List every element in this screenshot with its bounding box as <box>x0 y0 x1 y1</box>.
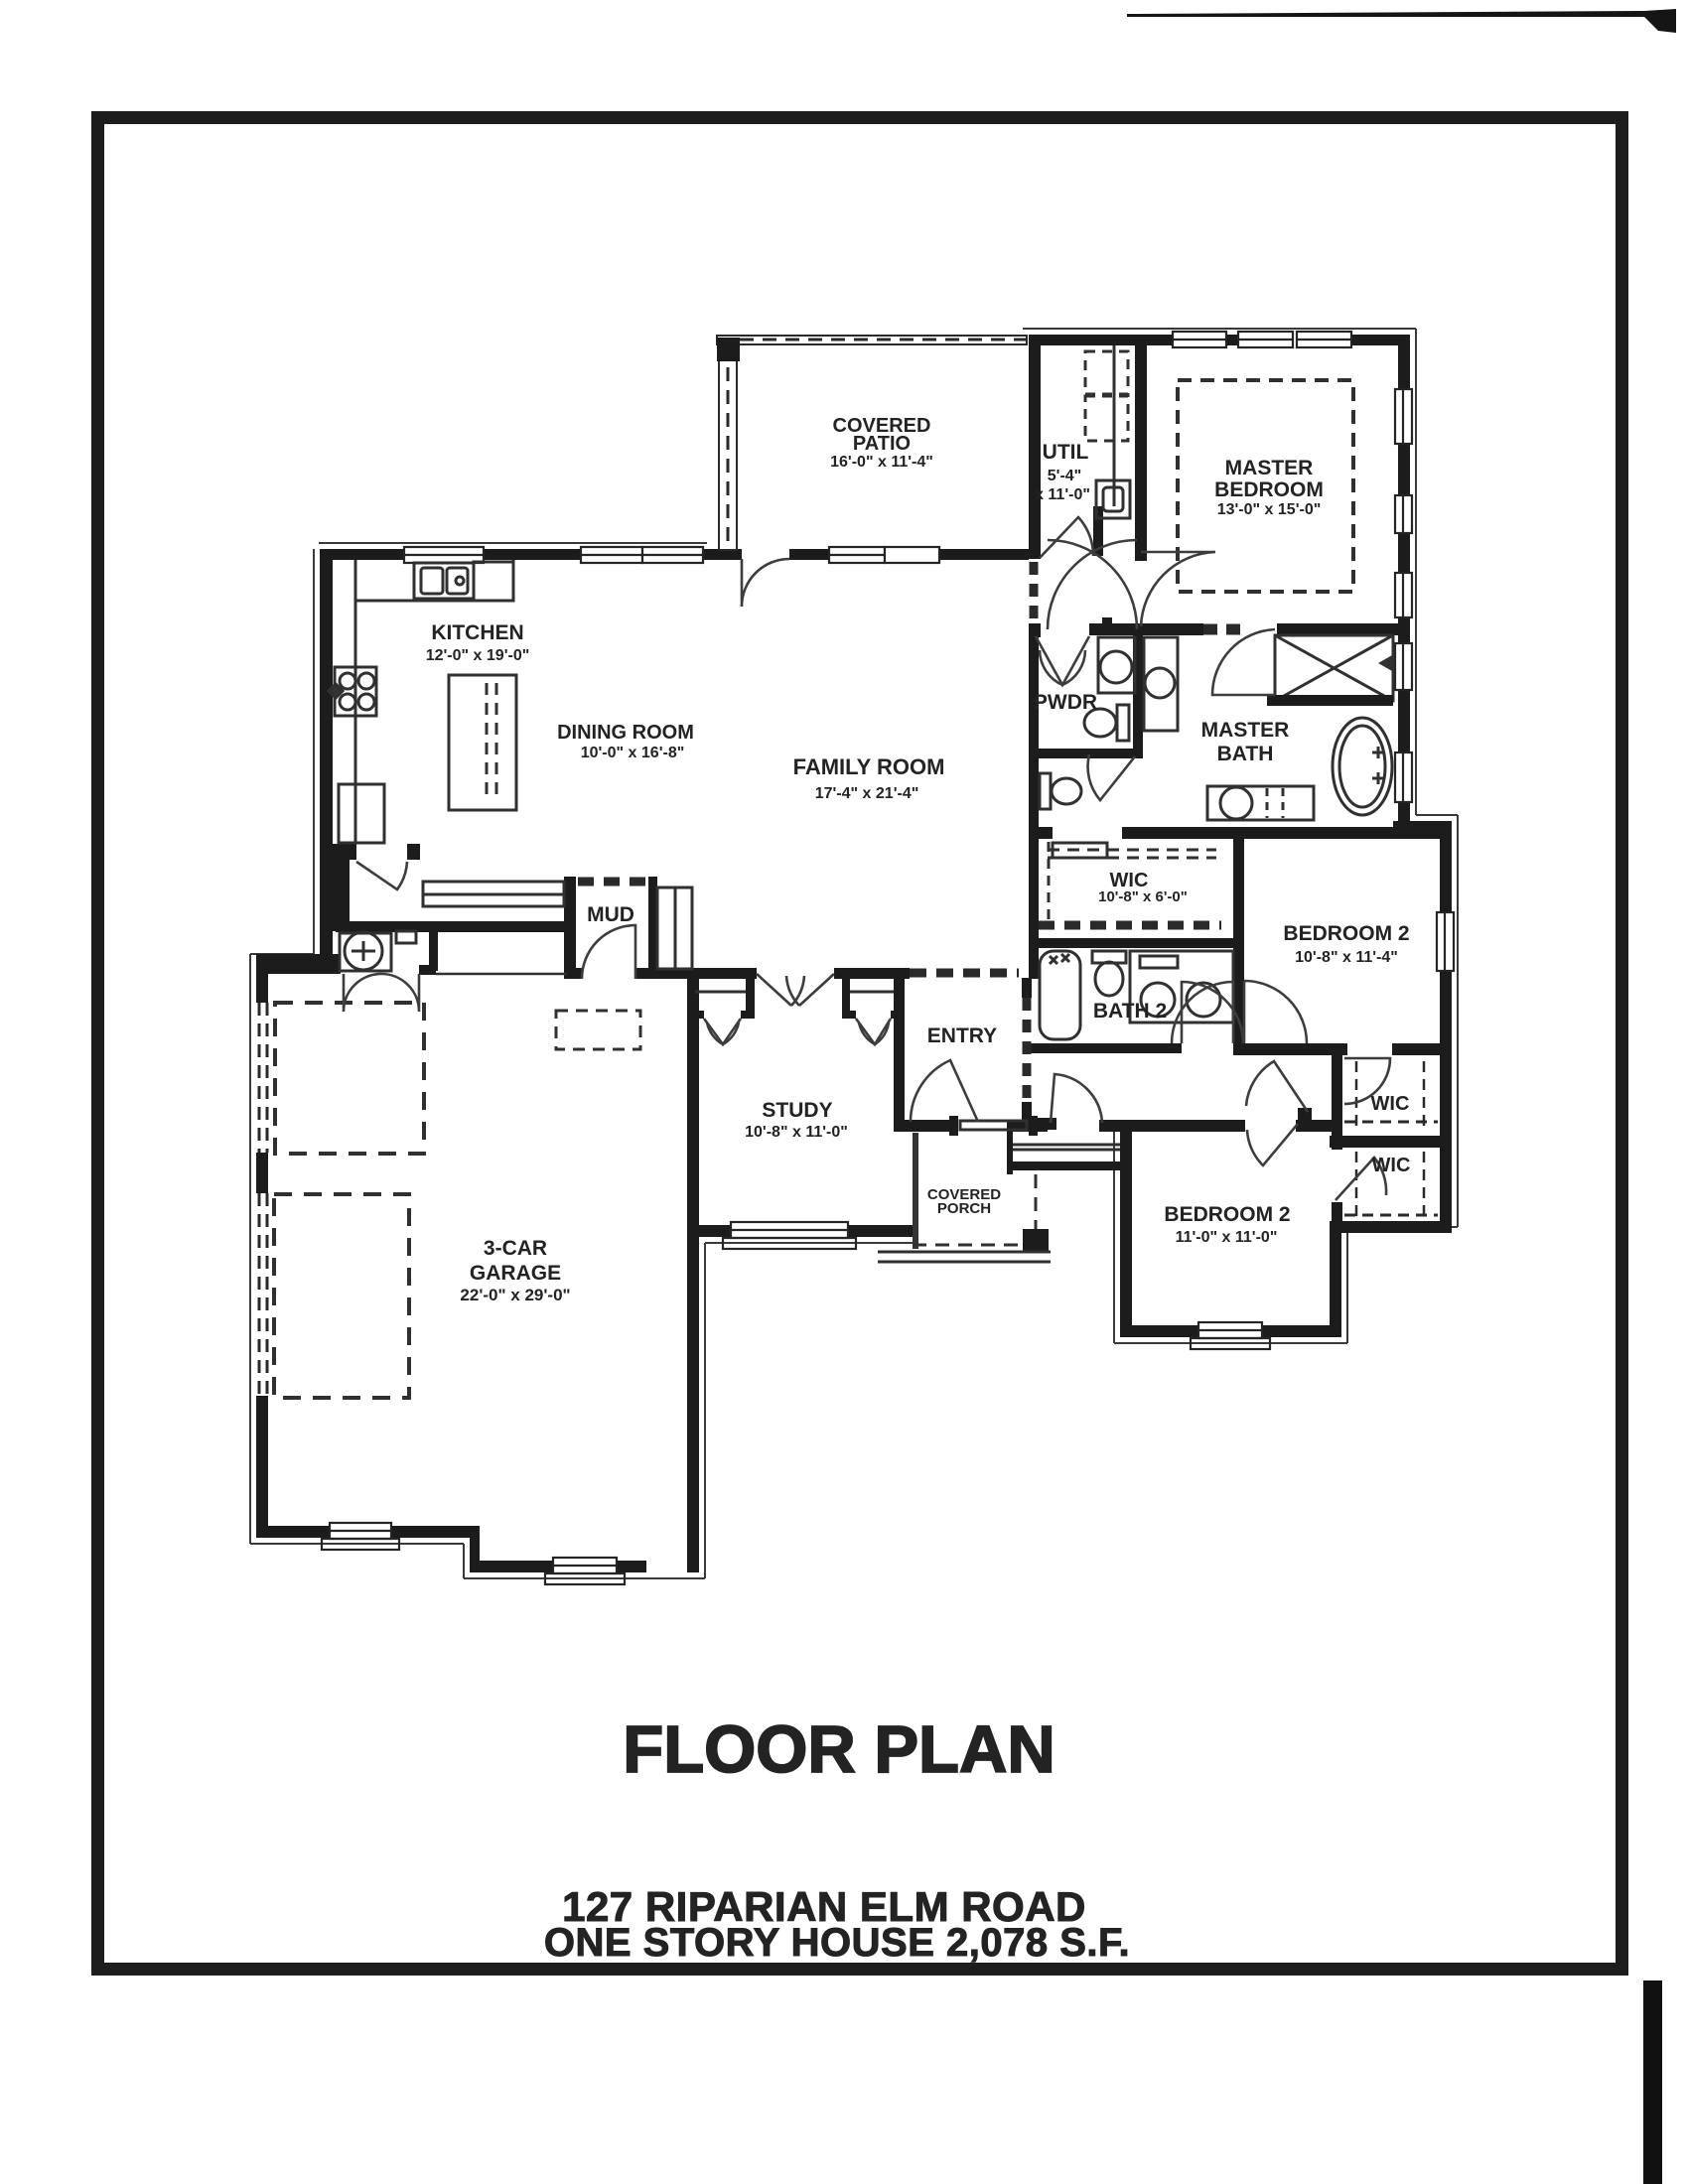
svg-text:PATIO: PATIO <box>853 433 911 455</box>
svg-text:KITCHEN: KITCHEN <box>431 621 523 644</box>
svg-text:10'-8" x 11'-4": 10'-8" x 11'-4" <box>1295 949 1398 966</box>
svg-text:DINING ROOM: DINING ROOM <box>557 722 694 744</box>
svg-text:12'-0" x 19'-0": 12'-0" x 19'-0" <box>426 647 530 664</box>
svg-text:BATH: BATH <box>1217 743 1274 765</box>
svg-text:MASTER: MASTER <box>1201 719 1290 742</box>
svg-text:WIC: WIC <box>1372 1155 1411 1176</box>
svg-text:10'-8" x 6'-0": 10'-8" x 6'-0" <box>1098 888 1188 905</box>
svg-text:UTIL: UTIL <box>1043 441 1089 464</box>
svg-text:x 11'-0": x 11'-0" <box>1035 486 1090 503</box>
svg-text:5'-4": 5'-4" <box>1048 468 1082 484</box>
svg-text:STUDY: STUDY <box>762 1099 832 1122</box>
svg-text:MUD: MUD <box>587 903 634 926</box>
svg-text:10'-8" x 11'-0": 10'-8" x 11'-0" <box>745 1124 848 1141</box>
svg-text:WIC: WIC <box>1371 1093 1410 1115</box>
svg-text:13'-0" x 15'-0": 13'-0" x 15'-0" <box>1217 501 1322 518</box>
svg-text:17'-4" x 21'-4": 17'-4" x 21'-4" <box>815 785 919 802</box>
svg-text:PORCH: PORCH <box>937 1200 991 1217</box>
svg-text:10'-0" x 16'-8": 10'-0" x 16'-8" <box>581 745 685 761</box>
svg-text:BEDROOM: BEDROOM <box>1214 478 1324 501</box>
svg-text:FAMILY ROOM: FAMILY ROOM <box>793 754 945 779</box>
svg-text:MASTER: MASTER <box>1225 457 1314 479</box>
svg-text:11'-0" x 11'-0": 11'-0" x 11'-0" <box>1176 1229 1278 1246</box>
svg-text:16'-0" x 11'-4": 16'-0" x 11'-4" <box>830 454 933 471</box>
svg-text:BEDROOM 2: BEDROOM 2 <box>1283 922 1409 945</box>
svg-text:GARAGE: GARAGE <box>470 1262 561 1285</box>
svg-text:BEDROOM 2: BEDROOM 2 <box>1164 1203 1290 1226</box>
svg-text:22'-0" x 29'-0": 22'-0" x 29'-0" <box>460 1286 570 1304</box>
svg-text:3-CAR: 3-CAR <box>484 1237 547 1260</box>
svg-text:FLOOR PLAN: FLOOR PLAN <box>623 1712 1055 1787</box>
svg-text:PWDR: PWDR <box>1034 691 1097 714</box>
svg-text:ONE STORY HOUSE 2,078 S.F.: ONE STORY HOUSE 2,078 S.F. <box>544 1921 1130 1965</box>
svg-text:BATH 2: BATH 2 <box>1093 1000 1167 1023</box>
svg-text:ENTRY: ENTRY <box>927 1024 997 1047</box>
